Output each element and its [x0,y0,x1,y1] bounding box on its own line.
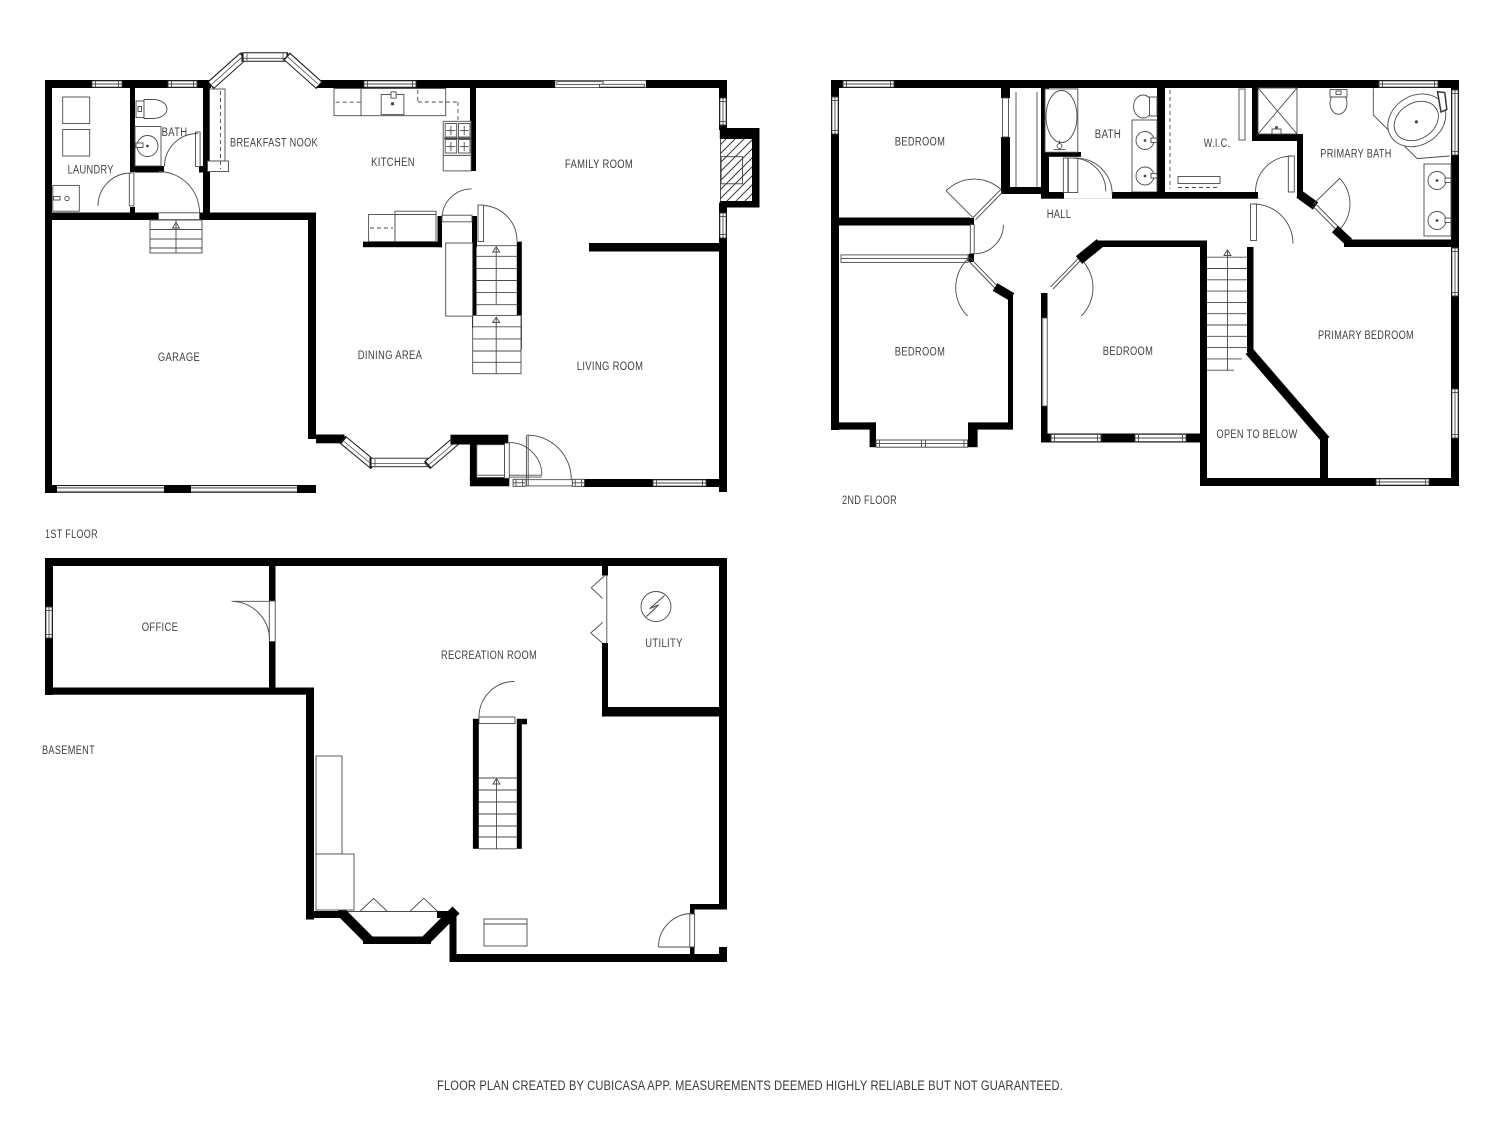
svg-text:BEDROOM: BEDROOM [1103,346,1153,358]
svg-text:LIVING ROOM: LIVING ROOM [577,361,644,373]
svg-text:GARAGE: GARAGE [158,352,200,364]
svg-text:OPEN TO BELOW: OPEN TO BELOW [1217,429,1298,441]
svg-text:PRIMARY BEDROOM: PRIMARY BEDROOM [1318,330,1414,342]
svg-text:HALL: HALL [1047,209,1072,221]
svg-text:1ST FLOOR: 1ST FLOOR [45,529,98,541]
svg-text:DINING AREA: DINING AREA [358,350,422,362]
svg-text:LAUNDRY: LAUNDRY [68,165,114,177]
svg-text:KITCHEN: KITCHEN [371,157,415,169]
svg-text:UTILITY: UTILITY [645,638,682,650]
svg-text:2ND FLOOR: 2ND FLOOR [842,495,897,507]
svg-text:BATH: BATH [1095,129,1121,141]
svg-text:W.I.C.: W.I.C. [1204,138,1231,150]
svg-text:FLOOR PLAN CREATED BY CUBICASA: FLOOR PLAN CREATED BY CUBICASA APP. MEAS… [437,1078,1063,1093]
svg-text:BEDROOM: BEDROOM [895,137,945,149]
svg-text:PRIMARY BATH: PRIMARY BATH [1320,149,1391,161]
svg-text:OFFICE: OFFICE [142,622,179,634]
svg-text:RECREATION ROOM: RECREATION ROOM [441,650,537,662]
svg-text:BREAKFAST NOOK: BREAKFAST NOOK [230,138,318,150]
svg-text:BATH: BATH [162,127,188,139]
svg-text:BEDROOM: BEDROOM [895,347,945,359]
svg-text:FAMILY ROOM: FAMILY ROOM [565,159,633,171]
svg-text:BASEMENT: BASEMENT [42,745,95,757]
